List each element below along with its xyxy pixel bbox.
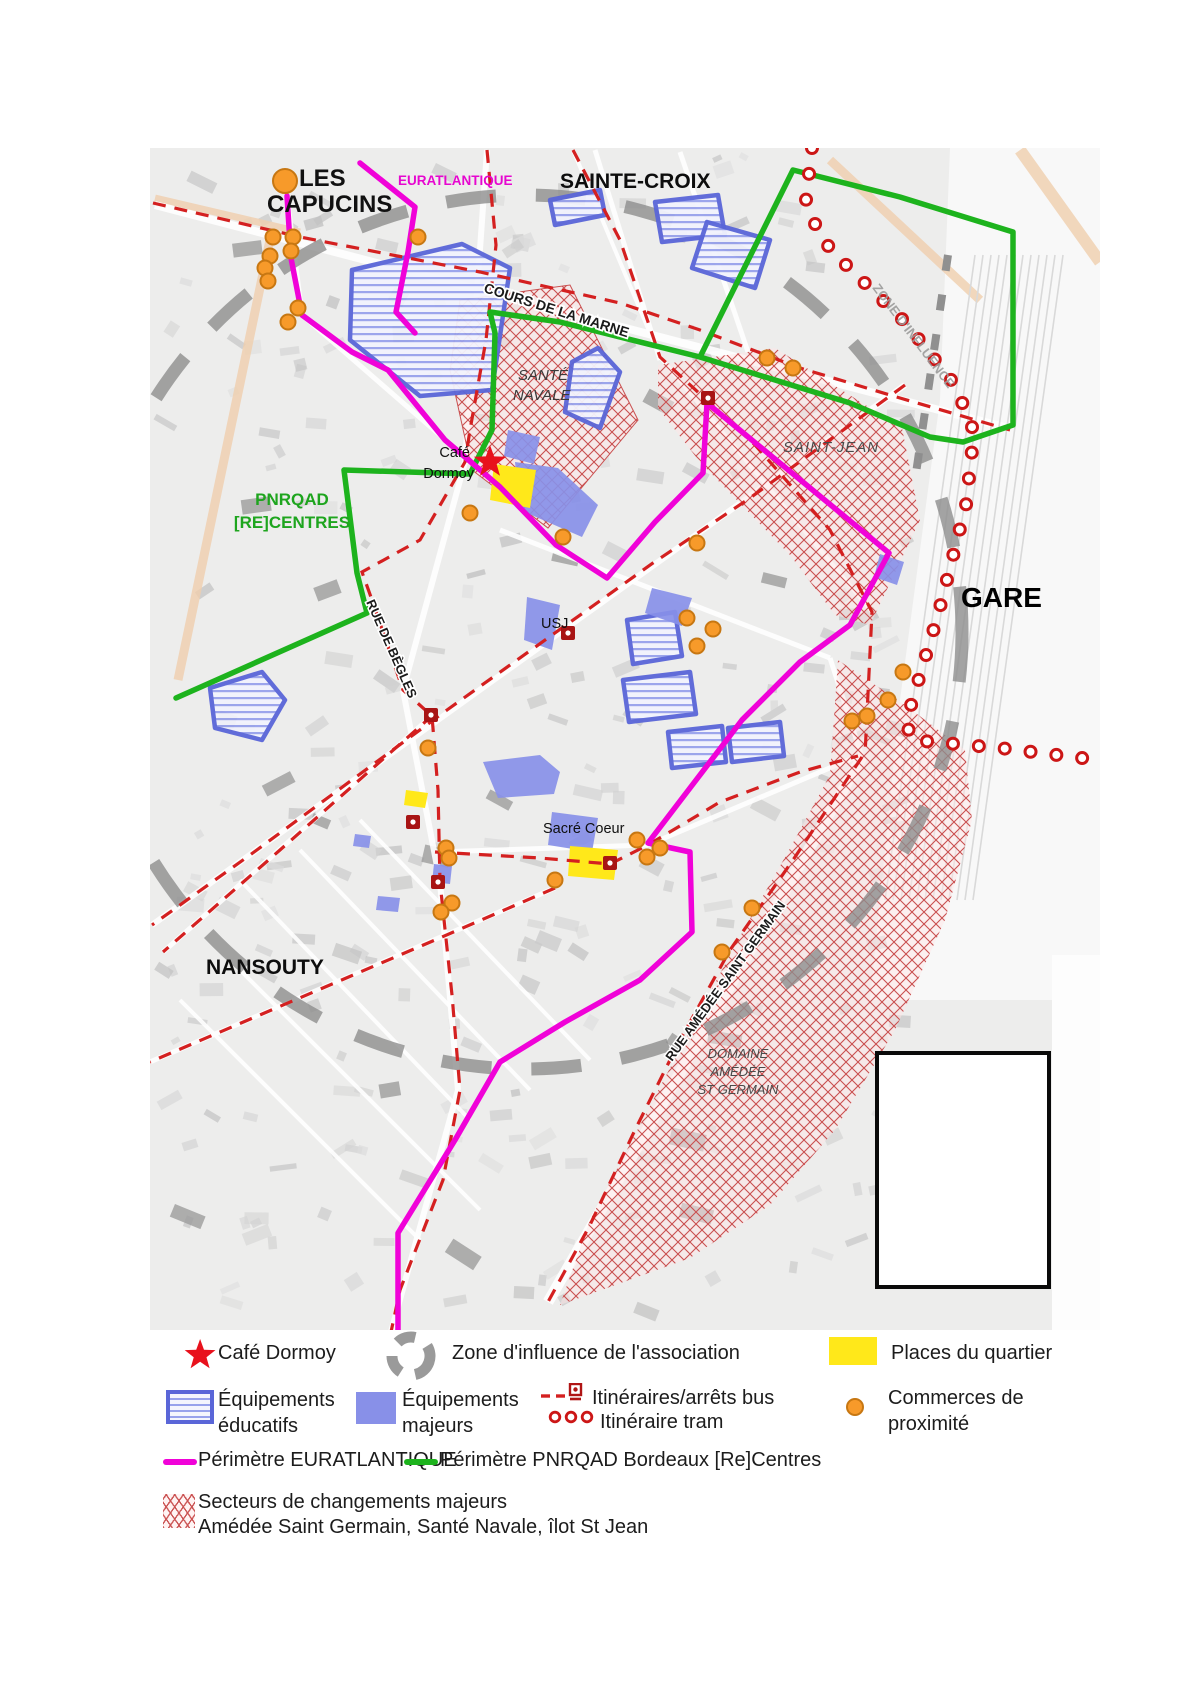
map-label-domaine-3: ST GERMAIN [698, 1082, 780, 1097]
legend-bus-label: Itinéraires/arrêts bus [592, 1387, 774, 1410]
influence-zone-icon [383, 1331, 443, 1383]
commerce-dot [715, 945, 730, 960]
commerce-dot [690, 639, 705, 654]
commerce-dot [680, 611, 695, 626]
legend-majeurs-label-1: Équipements [402, 1389, 519, 1412]
map-label-sainte-croix: SAINTE-CROIX [560, 170, 711, 193]
map-label-cafe-dormoy-1: Café [439, 445, 470, 461]
commerce-dot [286, 230, 301, 245]
legend-majeurs-label-2: majeurs [402, 1415, 473, 1438]
legend-places-label: Places du quartier [891, 1342, 1052, 1365]
commerces-dot-icon [846, 1398, 864, 1416]
commerce-dot [860, 709, 875, 724]
major-facility [376, 896, 400, 912]
tram-stop-circle [973, 741, 984, 752]
commerce-dot [266, 230, 281, 245]
tram-stop-circle [954, 524, 965, 535]
tram-stop-circle [903, 724, 914, 735]
legend-tram-label: Itinéraire tram [600, 1411, 723, 1434]
tram-stop-circle [935, 600, 946, 611]
map-label-sante-navale-1: SANTÉ [518, 367, 569, 384]
tram-stop-circle [906, 699, 917, 710]
map-label-domaine-1: DOMAINE [708, 1046, 769, 1061]
map-label-pnrqad-1: PNRQAD [255, 490, 329, 509]
map-canvas: LESCAPUCINSEURATLANTIQUESAINTE-CROIXCOUR… [150, 148, 1100, 1330]
commerce-dot [548, 873, 563, 888]
map-label-sacre-coeur: Sacré Coeur [543, 821, 625, 837]
map-label-pnrqad-2: [RE]CENTRES [234, 513, 350, 532]
commerce-dot [434, 905, 449, 920]
commerce-dot [690, 536, 705, 551]
inset-frame [877, 1053, 1049, 1287]
commerce-dot [630, 833, 645, 848]
tram-stop-circle [859, 277, 870, 288]
commerce-dot [421, 741, 436, 756]
map-page: LESCAPUCINSEURATLANTIQUESAINTE-CROIXCOUR… [0, 0, 1190, 1684]
pnrqad-line-swatch [404, 1459, 438, 1465]
educational-facility [623, 672, 696, 722]
map-label-cafe-dormoy-2: Dormoy [423, 466, 475, 482]
tram-stop-circle [1051, 749, 1062, 760]
commerce-dot [760, 351, 775, 366]
quarter-place [404, 790, 428, 808]
tram-stop-circle [1077, 753, 1088, 764]
tram-route-icon [548, 1409, 598, 1425]
bus-stop-icon [424, 708, 438, 722]
map-label-saint-jean: SAINT-JEAN [783, 439, 879, 456]
map-label-gare: GARE [961, 582, 1042, 613]
commerce-dot [284, 244, 299, 259]
equip-majeurs-swatch [356, 1392, 396, 1424]
tram-stop-circle [948, 549, 959, 560]
tram-stop-circle [810, 218, 821, 229]
bus-stop-icon [406, 815, 420, 829]
commerce-dot [745, 901, 760, 916]
legend-cafe-dormoy-label: Café Dormoy [218, 1342, 336, 1365]
commerce-dot [640, 850, 655, 865]
commerce-dot [463, 506, 478, 521]
places-swatch [829, 1337, 877, 1365]
tram-stop-circle [961, 499, 972, 510]
bus-stop-icon [701, 391, 715, 405]
commerce-dot [786, 361, 801, 376]
commerce-dot [556, 530, 571, 545]
commerce-dot [261, 274, 276, 289]
tram-stop-circle [801, 194, 812, 205]
tram-stop-circle [963, 473, 974, 484]
commerce-dot [411, 230, 426, 245]
tram-stop-circle [967, 422, 978, 433]
tram-stop-circle [1025, 746, 1036, 757]
commerce-dot [442, 851, 457, 866]
tram-stop-circle [928, 625, 939, 636]
legend-commerces-label-2: proximité [888, 1413, 969, 1436]
legend-secteurs-label-1: Secteurs de changements majeurs [198, 1491, 507, 1514]
tram-stop-circle [804, 168, 815, 179]
educational-facility [668, 726, 726, 768]
tram-stop-circle [957, 398, 968, 409]
euratlantique-line-swatch [163, 1459, 197, 1465]
map-label-les-capucins-1: LES [299, 165, 346, 192]
tram-stop-circle [947, 738, 958, 749]
tram-stop-circle [999, 743, 1010, 754]
tram-stop-circle [913, 674, 924, 685]
commerce-dot [896, 665, 911, 680]
legend-commerces-label-1: Commerces de [888, 1387, 1024, 1410]
map-label-les-capucins-2: CAPUCINS [267, 191, 392, 218]
commerce-dot [291, 301, 306, 316]
commerce-dot [881, 693, 896, 708]
legend-perimetre-pnrqad-label: Périmètre PNRQAD Bordeaux [Re]Centres [440, 1449, 821, 1472]
legend-educatifs-label-1: Équipements [218, 1389, 335, 1412]
commerce-dot [706, 622, 721, 637]
bus-stop-icon [431, 875, 445, 889]
commerce-dot [653, 841, 668, 856]
map-label-usj: USJ [541, 616, 568, 632]
bus-stop-icon [603, 856, 617, 870]
tram-stop-circle [840, 259, 851, 270]
cafe-dormoy-star-legend-icon [183, 1338, 219, 1372]
tram-stop-circle [966, 447, 977, 458]
commerce-dot [845, 714, 860, 729]
major-facility [353, 834, 371, 848]
commerce-dot [273, 169, 297, 193]
tram-stop-circle [807, 148, 818, 154]
tram-stop-circle [922, 736, 933, 747]
map-label-nansouty: NANSOUTY [206, 956, 324, 979]
commerce-dot [281, 315, 296, 330]
legend-educatifs-label-2: éducatifs [218, 1415, 298, 1438]
tram-stop-circle [941, 574, 952, 585]
equip-educatifs-swatch [166, 1390, 214, 1424]
secteurs-hatch-swatch [163, 1494, 195, 1528]
map-white-corner [1052, 955, 1100, 1330]
bus-route-icon [540, 1383, 584, 1403]
legend-zone-label: Zone d'influence de l'association [452, 1342, 740, 1365]
map-label-sante-navale-2: NAVALE [513, 387, 572, 404]
tram-stop-circle [823, 240, 834, 251]
map-label-euratlantique: EURATLANTIQUE [398, 173, 513, 188]
map-label-domaine-2: AMÉDÉE [710, 1064, 766, 1079]
tram-stop-circle [921, 650, 932, 661]
legend-secteurs-label-2: Amédée Saint Germain, Santé Navale, îlot… [198, 1516, 648, 1539]
